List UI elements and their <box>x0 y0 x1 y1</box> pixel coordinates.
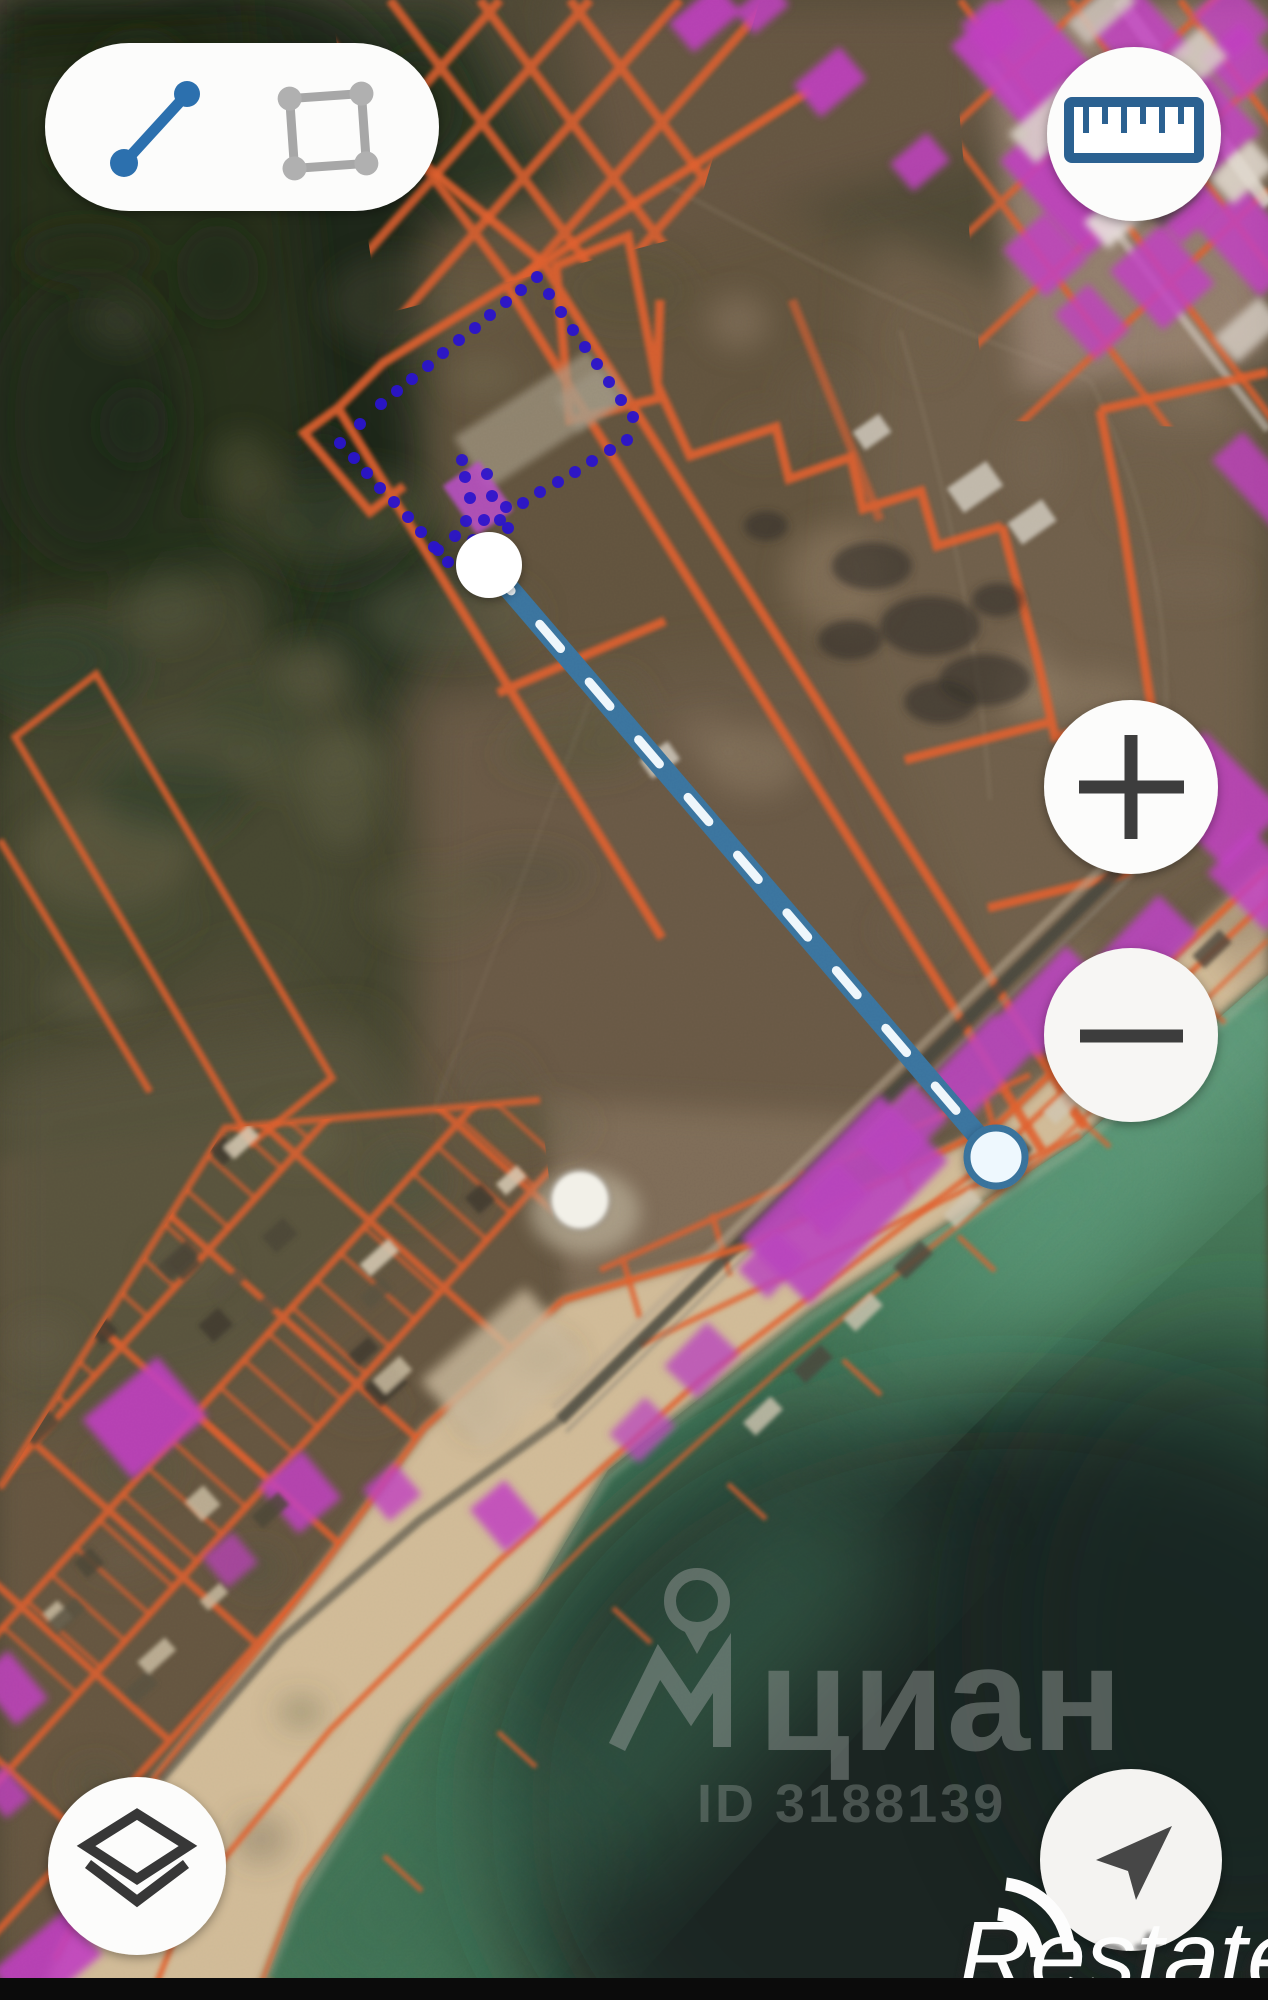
svg-text:циан: циан <box>758 1614 1124 1782</box>
svg-text:ID 3188139: ID 3188139 <box>697 1774 1006 1834</box>
